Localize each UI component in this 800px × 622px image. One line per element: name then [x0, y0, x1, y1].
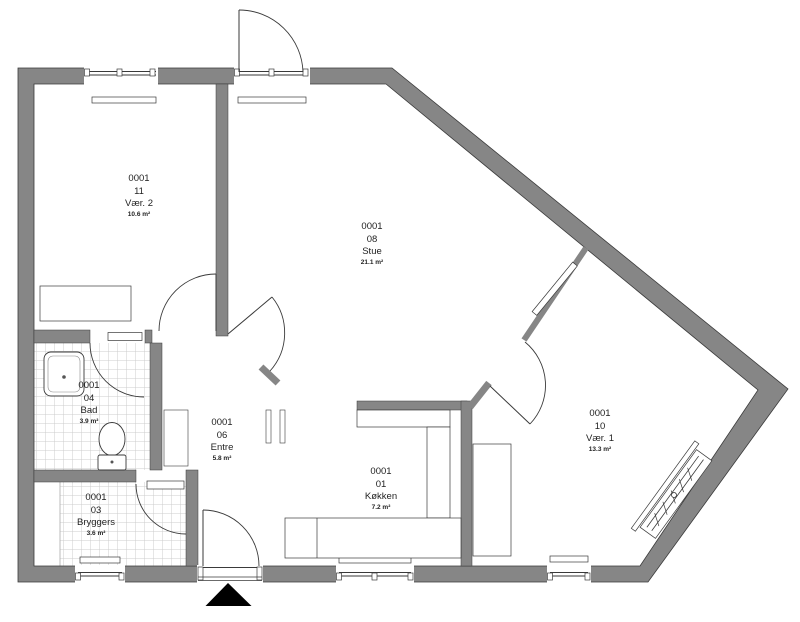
- wall-stue-entre-stub: [261, 367, 278, 383]
- room-name: Vær. 2: [125, 198, 153, 211]
- sliding-panel-stue: [532, 262, 577, 315]
- room-number: 11: [125, 186, 153, 199]
- door-stue: [228, 297, 285, 371]
- room-number: 10: [586, 421, 614, 434]
- door-swing-arc: [159, 274, 216, 331]
- room-label-bryggers: 0001 03 Bryggers 3.6 m²: [77, 492, 115, 538]
- room-number: 08: [361, 234, 383, 247]
- room-area: 3.9 m²: [78, 418, 99, 426]
- entre-koekken-jamb-left: [266, 410, 271, 443]
- room-id: 0001: [125, 173, 153, 186]
- window-vaer1-bottom: [547, 556, 591, 583]
- room-number: 03: [77, 505, 115, 518]
- door-swing-arc: [203, 510, 259, 566]
- room-name: Entre: [211, 442, 234, 455]
- room-name: Bad: [78, 405, 99, 418]
- entrance-marker-triangle: [206, 583, 252, 606]
- wall-vaer2-stue: [216, 84, 228, 336]
- wardrobe-vaer2: [40, 286, 131, 321]
- wall-koekken-jamb-diagonal: [470, 383, 489, 407]
- room-id: 0001: [365, 466, 397, 479]
- wall-stue-vaer1-diagonal: [524, 248, 586, 340]
- room-id: 0001: [78, 380, 99, 393]
- room-number: 04: [78, 393, 99, 406]
- toilet: [98, 423, 126, 471]
- room-label-stue: 0001 08 Stue 21.1 m²: [361, 221, 383, 267]
- door-leaf: [228, 297, 272, 334]
- window-bryggers-bottom: [75, 557, 125, 583]
- door-vaer2: [159, 274, 216, 331]
- room-name: Bryggers: [77, 517, 115, 530]
- entrance-door-opening: [197, 565, 263, 583]
- door-swing-arc: [270, 297, 285, 371]
- room-label-vaer-1: 0001 10 Vær. 1 13.3 m²: [586, 408, 614, 454]
- room-name: Vær. 1: [586, 433, 614, 446]
- wall-koekken-top: [357, 401, 467, 410]
- room-area: 21.1 m²: [361, 259, 383, 267]
- room-label-koekken: 0001 01 Køkken 7.2 m²: [365, 466, 397, 512]
- room-label-vaer-2: 0001 11 Vær. 2 10.6 m²: [125, 173, 153, 219]
- wall-koekken-vaer1: [461, 401, 472, 566]
- door-entrance: [203, 510, 259, 566]
- door-leaf: [490, 386, 530, 424]
- room-name: Stue: [361, 246, 383, 259]
- room-area: 13.3 m²: [586, 446, 614, 454]
- window-sill: [80, 557, 120, 563]
- wall-vaer2-bad-left: [34, 330, 90, 343]
- room-id: 0001: [211, 417, 234, 430]
- room-label-bad: 0001 04 Bad 3.9 m²: [78, 380, 99, 426]
- room-area: 3.6 m²: [77, 530, 115, 538]
- room-id: 0001: [361, 221, 383, 234]
- kitchen-counter-top: [357, 410, 450, 427]
- room-area: 10.6 m²: [125, 211, 153, 219]
- room-area: 7.2 m²: [365, 504, 397, 512]
- room-label-entre: 0001 06 Entre 5.8 m²: [211, 417, 234, 463]
- kitchen-counter-right: [427, 427, 450, 518]
- window-koekken-bottom: [336, 557, 414, 583]
- wall-vaer2-bad-right: [145, 330, 152, 343]
- window-vaer2-top: [84, 67, 158, 103]
- room-area: 5.8 m²: [211, 455, 234, 463]
- window-sill: [92, 97, 156, 103]
- door-swing-arc: [525, 342, 546, 424]
- room-id: 0001: [77, 492, 115, 505]
- floorplan-drawing: [0, 0, 800, 622]
- kitchen-counter-bottom: [285, 518, 461, 558]
- room-number: 01: [365, 479, 397, 492]
- sink-drain: [62, 375, 66, 379]
- entre-cabinet: [164, 410, 188, 466]
- room-name: Køkken: [365, 491, 397, 504]
- room-number: 06: [211, 430, 234, 443]
- door-swing-arc: [239, 10, 303, 72]
- window-sill: [238, 97, 306, 103]
- wall-bad-right: [150, 343, 162, 470]
- floorplan-canvas: 0001 11 Vær. 2 10.6 m² 0001 08 Stue 21.1…: [0, 0, 800, 622]
- wall-bad-bryggers: [34, 470, 136, 482]
- window-door-stue-top: [234, 10, 310, 103]
- wall-bryggers-right: [186, 470, 198, 566]
- door-vaer1: [490, 342, 546, 424]
- window-sill: [550, 556, 588, 562]
- room-id: 0001: [586, 408, 614, 421]
- wardrobe-vaer1: [473, 444, 511, 556]
- entre-koekken-jamb-right: [280, 410, 285, 443]
